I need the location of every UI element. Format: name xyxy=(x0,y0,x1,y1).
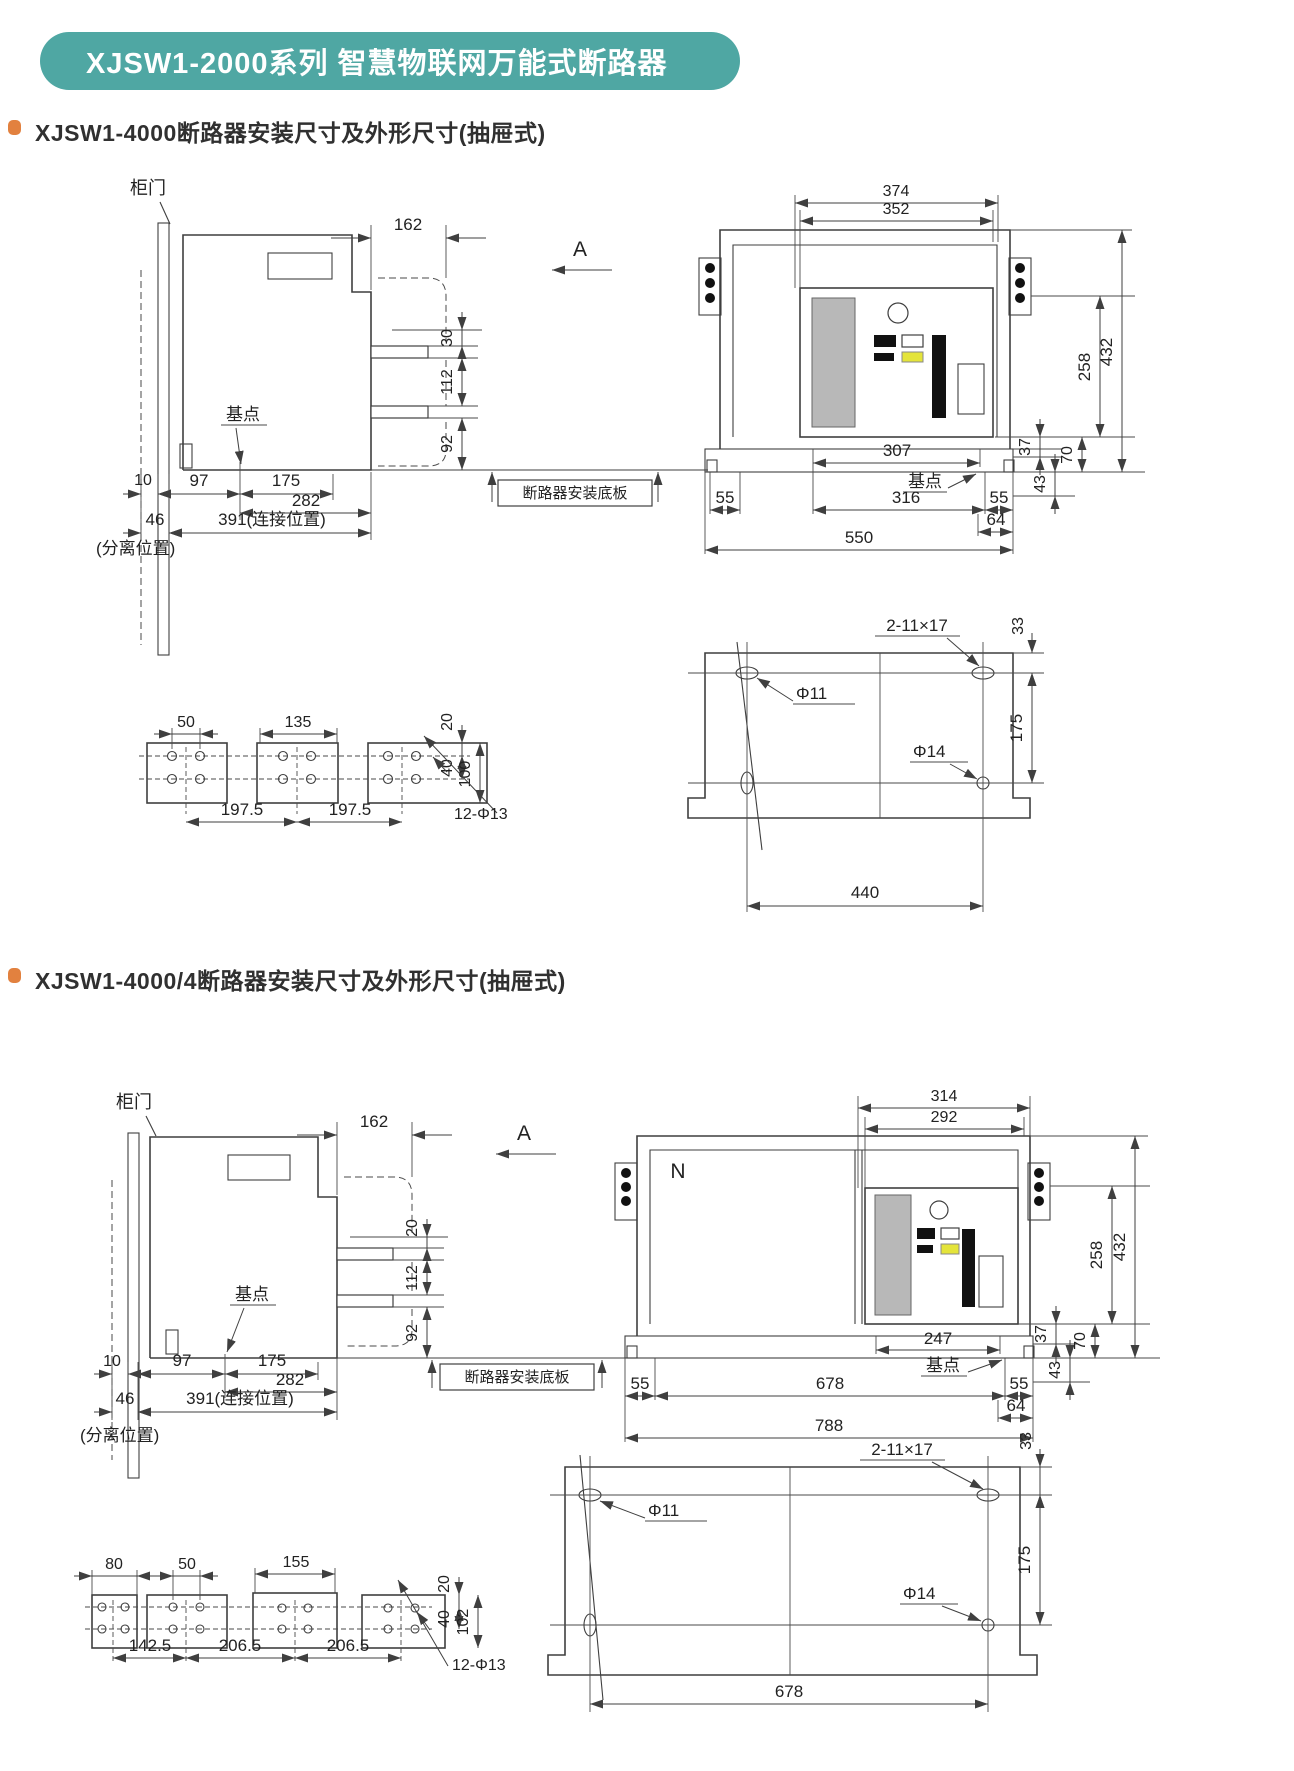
s1-front-view: 374 352 307 基点 316 55 55 64 xyxy=(699,183,1145,554)
dim-432: 432 xyxy=(1097,338,1116,366)
dim-64: 64 xyxy=(987,510,1006,529)
n-pole-label: N xyxy=(670,1160,685,1183)
dim-80: 80 xyxy=(105,1556,123,1573)
separated-position-label: (分离位置) xyxy=(80,1426,159,1445)
base-point-label: 基点 xyxy=(235,1285,269,1304)
dim-307: 307 xyxy=(883,441,911,460)
dim-20: 20 xyxy=(439,713,456,731)
s2-side-view: 柜门 162 20 112 9 xyxy=(80,1092,640,1478)
breaker-faceplate-panel xyxy=(875,1195,911,1315)
dim-37: 37 xyxy=(1033,1325,1050,1343)
dim-282: 282 xyxy=(292,491,320,510)
dim-282: 282 xyxy=(276,1370,304,1389)
dim-46: 46 xyxy=(146,510,165,529)
dim-102: 102 xyxy=(455,1609,472,1636)
section1-heading: XJSW1-4000断路器安装尺寸及外形尺寸(抽屉式) xyxy=(8,114,546,148)
plate-holes xyxy=(98,1603,419,1633)
hole-phi11-label: Φ11 xyxy=(796,684,827,703)
dim-316: 316 xyxy=(892,488,920,507)
slot-spec-label: 2-11×17 xyxy=(871,1440,933,1459)
dim-55-right: 55 xyxy=(1010,1374,1029,1393)
base-point-label: 基点 xyxy=(926,1356,960,1375)
dim-97: 97 xyxy=(173,1351,192,1370)
dim-678: 678 xyxy=(775,1682,803,1701)
dim-70: 70 xyxy=(1059,446,1076,464)
dim-33: 33 xyxy=(1018,1432,1035,1450)
breaker-indicator xyxy=(941,1244,959,1254)
dim-258: 258 xyxy=(1075,353,1094,381)
dim-92: 92 xyxy=(439,435,456,453)
dim-550: 550 xyxy=(845,528,873,547)
dim-10: 10 xyxy=(103,1353,121,1370)
s1-side-view: 柜门 162 30 112 xyxy=(96,178,708,655)
hole-phi11-label: Φ11 xyxy=(648,1501,679,1520)
dim-92: 92 xyxy=(404,1324,421,1342)
s1-busbar-plates: 50 135 20 40 100 197.5 197.5 12-Φ13 xyxy=(139,713,508,823)
bullet-icon xyxy=(8,120,21,135)
dim-374: 374 xyxy=(883,183,910,200)
dim-50: 50 xyxy=(177,714,195,731)
section2-heading-text: XJSW1-4000/4断路器安装尺寸及外形尺寸(抽屉式) xyxy=(35,962,566,996)
section2-drawing: 柜门 162 20 112 9 xyxy=(0,1000,1294,1771)
s2-mounting-plan: Φ11 Φ14 2-11×17 33 175 678 xyxy=(548,1432,1052,1712)
dim-43: 43 xyxy=(1047,1361,1064,1379)
dim-33: 33 xyxy=(1010,617,1027,635)
dim-40: 40 xyxy=(436,1610,453,1628)
dim-788: 788 xyxy=(815,1416,843,1435)
hole-spec-label: 12-Φ13 xyxy=(452,1657,506,1674)
breaker-indicator xyxy=(902,352,923,362)
section2-heading: XJSW1-4000/4断路器安装尺寸及外形尺寸(抽屉式) xyxy=(8,962,566,996)
dim-155: 155 xyxy=(283,1554,310,1571)
breaker-faceplate-panel xyxy=(812,298,855,427)
dim-43: 43 xyxy=(1032,475,1049,493)
page-title-text: XJSW1-2000系列 智慧物联网万能式断路器 xyxy=(86,40,668,82)
dim-162: 162 xyxy=(394,215,422,234)
dim-258: 258 xyxy=(1087,1241,1106,1269)
cabinet-door-label: 柜门 xyxy=(130,178,166,198)
datasheet-page: XJSW1-2000系列 智慧物联网万能式断路器 XJSW1-4000断路器安装… xyxy=(0,0,1294,1771)
dim-135: 135 xyxy=(285,714,312,731)
dim-175: 175 xyxy=(1015,1546,1034,1574)
dim-352: 352 xyxy=(883,201,910,218)
section1-drawing: 柜门 162 30 112 xyxy=(0,150,1294,950)
dim-10: 10 xyxy=(134,472,152,489)
hole-spec-label: 12-Φ13 xyxy=(454,806,508,823)
dim-391: 391(连接位置) xyxy=(186,1389,294,1408)
breaker-button xyxy=(888,303,908,323)
dim-37: 37 xyxy=(1017,438,1034,456)
slot-spec-label: 2-11×17 xyxy=(886,616,948,635)
dim-391: 391(连接位置) xyxy=(218,510,326,529)
dim-175: 175 xyxy=(1007,714,1026,742)
base-point-label: 基点 xyxy=(226,405,260,424)
dim-314: 314 xyxy=(931,1088,958,1105)
dim-432: 432 xyxy=(1110,1233,1129,1261)
section1-heading-text: XJSW1-4000断路器安装尺寸及外形尺寸(抽屉式) xyxy=(35,114,546,148)
dim-440: 440 xyxy=(851,883,879,902)
dim-142-5: 142.5 xyxy=(129,1636,172,1655)
hole-phi14-label: Φ14 xyxy=(913,742,945,761)
s2-front-view: N 314 292 xyxy=(615,1088,1160,1442)
dim-70: 70 xyxy=(1072,1332,1089,1350)
separated-position-label: (分离位置) xyxy=(96,539,175,558)
dim-206-5-a: 206.5 xyxy=(219,1636,262,1655)
s1-mounting-plan: Φ11 Φ14 2-11×17 33 175 440 xyxy=(688,616,1044,912)
dim-55-left: 55 xyxy=(631,1374,650,1393)
breaker-button xyxy=(930,1201,948,1219)
dim-678: 678 xyxy=(816,1374,844,1393)
dim-55-right: 55 xyxy=(990,488,1009,507)
dim-206-5-b: 206.5 xyxy=(327,1636,370,1655)
dim-112: 112 xyxy=(439,369,456,395)
cabinet-door-label: 柜门 xyxy=(116,1092,152,1112)
dim-247: 247 xyxy=(924,1329,952,1348)
dim-162: 162 xyxy=(360,1112,388,1131)
view-a-label: A xyxy=(573,238,587,261)
dim-20: 20 xyxy=(404,1219,421,1237)
base-plate-label: 断路器安装底板 xyxy=(464,1368,569,1386)
dim-175: 175 xyxy=(258,1351,286,1370)
dim-50: 50 xyxy=(178,1556,196,1573)
dim-197-5-a: 197.5 xyxy=(221,800,264,819)
dim-30: 30 xyxy=(439,329,456,347)
dim-97: 97 xyxy=(190,471,209,490)
dim-64: 64 xyxy=(1007,1396,1026,1415)
dim-112: 112 xyxy=(404,1265,421,1291)
dim-292: 292 xyxy=(931,1109,958,1126)
dim-20: 20 xyxy=(436,1575,453,1593)
dim-175: 175 xyxy=(272,471,300,490)
dim-46: 46 xyxy=(116,1389,135,1408)
base-plate-label: 断路器安装底板 xyxy=(522,484,627,502)
bullet-icon xyxy=(8,968,21,983)
hole-phi14-label: Φ14 xyxy=(903,1584,935,1603)
dim-55-left: 55 xyxy=(716,488,735,507)
page-title: XJSW1-2000系列 智慧物联网万能式断路器 xyxy=(40,32,740,90)
dim-40: 40 xyxy=(439,759,456,777)
dim-197-5-b: 197.5 xyxy=(329,800,372,819)
s2-busbar-plates: 80 50 155 20 40 102 142.5 206.5 206.5 xyxy=(74,1554,506,1674)
view-a-label: A xyxy=(517,1122,531,1145)
